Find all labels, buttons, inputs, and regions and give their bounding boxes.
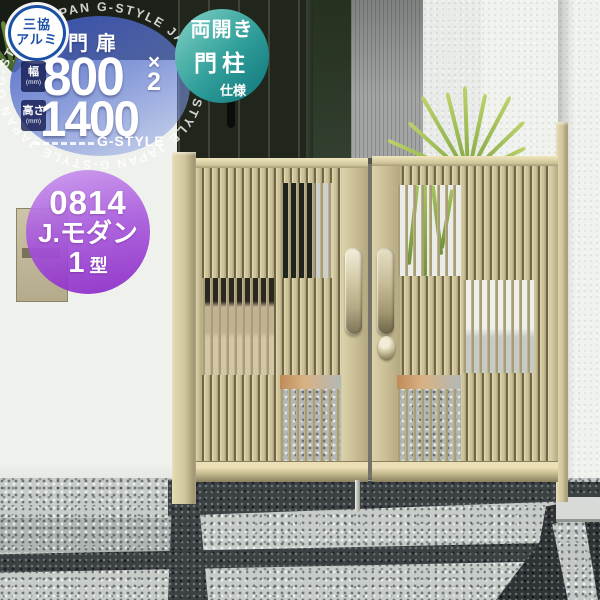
gate-thin-slats: [202, 278, 274, 375]
gate-thin-slats: [397, 375, 461, 462]
gate-bottom-rail: [372, 461, 558, 482]
type-line2: 門柱: [194, 44, 250, 78]
gate-bottom-rail: [196, 461, 368, 482]
front-door-frame: [306, 0, 313, 164]
type-line1: 両開き: [191, 13, 254, 42]
brand-line1: 三協: [23, 18, 51, 33]
gate-handle-right: [377, 248, 394, 334]
gate-thin-slats: [280, 183, 332, 278]
height-unit: (mm): [26, 119, 41, 126]
model-badge: 0814 J.モダン 1 型: [26, 170, 150, 294]
dark-green-wall: [313, 0, 351, 165]
model-type-suffix: 型: [90, 257, 108, 275]
gate-door-right: [372, 156, 558, 482]
model-type: 1 型: [68, 249, 107, 278]
gravel-shadow-band: [0, 518, 177, 552]
product-promo-image: G-STYLE JAPAN G-STYLE JAPAN G-STYLE JAPA…: [0, 0, 600, 600]
gate-opening: [397, 185, 461, 276]
gate-drop-rod: [355, 480, 360, 512]
gate-handle-left: [345, 248, 362, 334]
brand-line2: アルミ: [16, 33, 58, 48]
gate-thin-slats: [397, 185, 461, 276]
gate-opening: [202, 278, 274, 375]
gate-opening: [280, 375, 341, 462]
width-unit: (mm): [26, 80, 41, 87]
gate-post-left: [172, 152, 196, 504]
model-code: 0814: [49, 186, 126, 219]
width-multiplier: × 2: [147, 54, 161, 93]
opening-type-badge: 両開き 門柱 仕様: [175, 9, 269, 103]
leaf-count: 2: [147, 72, 161, 93]
dashed-divider: [34, 142, 94, 145]
gate-door-left: [196, 158, 368, 482]
model-type-number: 1: [68, 249, 84, 278]
gate-opening: [397, 375, 461, 462]
gate-opening: [280, 183, 332, 278]
gate-thin-slats: [280, 375, 341, 462]
gate-center-gap: [368, 158, 372, 480]
gate-opening: [463, 280, 534, 373]
gate-stile: [550, 166, 558, 462]
width-label: 幅: [28, 67, 39, 78]
type-line3: 仕様: [220, 80, 246, 99]
gate-lock-knob: [378, 336, 395, 359]
model-name: J.モダン: [38, 219, 138, 249]
gstyle-brand-label: G-STYLE: [97, 133, 165, 149]
gate-thin-slats: [463, 280, 534, 373]
